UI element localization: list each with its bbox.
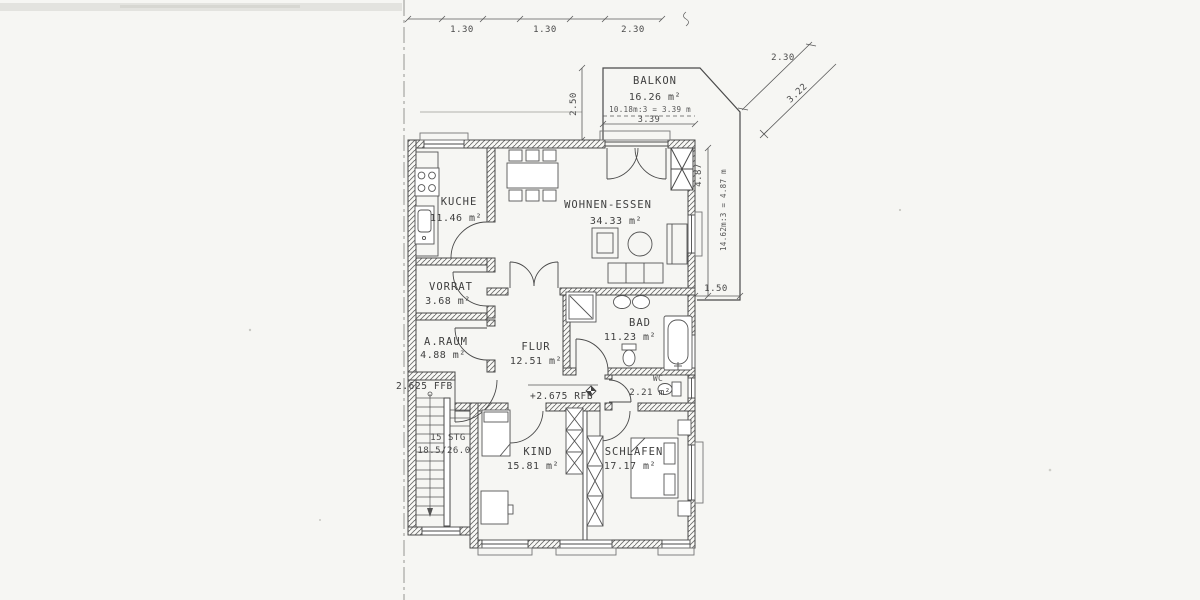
dim-strip-width: 1.50 (704, 284, 728, 294)
sofa-icon (608, 263, 663, 283)
stove-icon (415, 168, 439, 196)
floor-plan-drawing: 1.30 1.30 2.30 3.39 2.50 4.87 14.62m:3 =… (0, 0, 1200, 600)
dim-balkon-left: 2.50 (569, 92, 579, 116)
schlafen-area: 17.17 m² (604, 461, 656, 472)
balkon-label: BALKON (633, 75, 677, 87)
desk-icon (481, 491, 513, 524)
wc-label: WC (653, 374, 663, 383)
armchair-icon (592, 228, 618, 258)
vorrat-label: VORRAT (429, 281, 473, 293)
dim-top-3: 2.30 (621, 25, 645, 35)
bad-area: 11.23 m² (604, 332, 656, 343)
balkon-left-dim (579, 65, 585, 143)
flur-label: FLUR (521, 341, 550, 353)
dim-top-2: 1.30 (533, 25, 557, 35)
right-note: 14.62m:3 = 4.87 m (719, 169, 728, 251)
araum-label: A.RAUM (424, 336, 468, 348)
dining-table-icon (507, 150, 558, 201)
scan-artifacts (0, 3, 1051, 521)
dim-top-1: 1.30 (450, 25, 474, 35)
toilet-icon (622, 344, 636, 366)
kitchen-door-icon (451, 222, 487, 258)
kind-door-icon (510, 411, 543, 443)
chimney-icon (671, 148, 693, 190)
kind-label: KIND (523, 446, 552, 458)
kueche-area: 11.46 m² (430, 213, 482, 224)
coffee-table-icon (628, 232, 652, 256)
stairs-steps-label: 15 STG (430, 433, 466, 443)
bad-door-icon (576, 339, 608, 371)
dim-balkon-width: 3.39 (638, 115, 660, 125)
dim-diag-a: 2.30 (771, 53, 795, 63)
right-dimension (705, 145, 711, 299)
sideboard-icon (667, 224, 687, 264)
balkon-note: 10.18m:3 = 3.39 m (609, 105, 691, 114)
floor-plan-page: 1.30 1.30 2.30 3.39 2.50 4.87 14.62m:3 =… (0, 0, 1200, 600)
rfb-level-label: +2.675 RFB (530, 391, 593, 402)
kueche-label: KUCHE (441, 196, 478, 208)
schlafen-label: SCHLAFEN (605, 446, 664, 458)
stairs-ratio-label: 18.5/26.0 (417, 446, 470, 456)
flur-area: 12.51 m² (510, 356, 562, 367)
wc-door-icon (609, 380, 631, 402)
balkon-area: 16.26 m² (629, 92, 681, 103)
vorrat-area: 3.68 m² (425, 296, 471, 307)
schlafen-door-icon (600, 411, 630, 441)
ffb-level-label: 2.625 FFB (396, 381, 453, 392)
flur-double-door-icon (510, 262, 558, 288)
wc-area: 2.21 m² (629, 388, 670, 398)
french-door-icon (607, 148, 666, 179)
bathtub-icon (664, 316, 692, 370)
wohnen-area: 34.33 m² (590, 216, 642, 227)
washbasin-icon (614, 296, 650, 309)
araum-area: 4.88 m² (420, 350, 466, 361)
top-dimension-chain (405, 12, 689, 26)
wohnen-label: WOHNEN-ESSEN (564, 199, 652, 211)
kind-schlafen-partition (583, 411, 587, 548)
room-labels: BALKON 16.26 m² 10.18m:3 = 3.39 m KUCHE … (420, 75, 691, 472)
kind-bed-icon (482, 410, 510, 456)
shower-icon (566, 292, 596, 322)
sink-icon (415, 206, 434, 244)
kind-area: 15.81 m² (507, 461, 559, 472)
bad-label: BAD (629, 317, 651, 329)
